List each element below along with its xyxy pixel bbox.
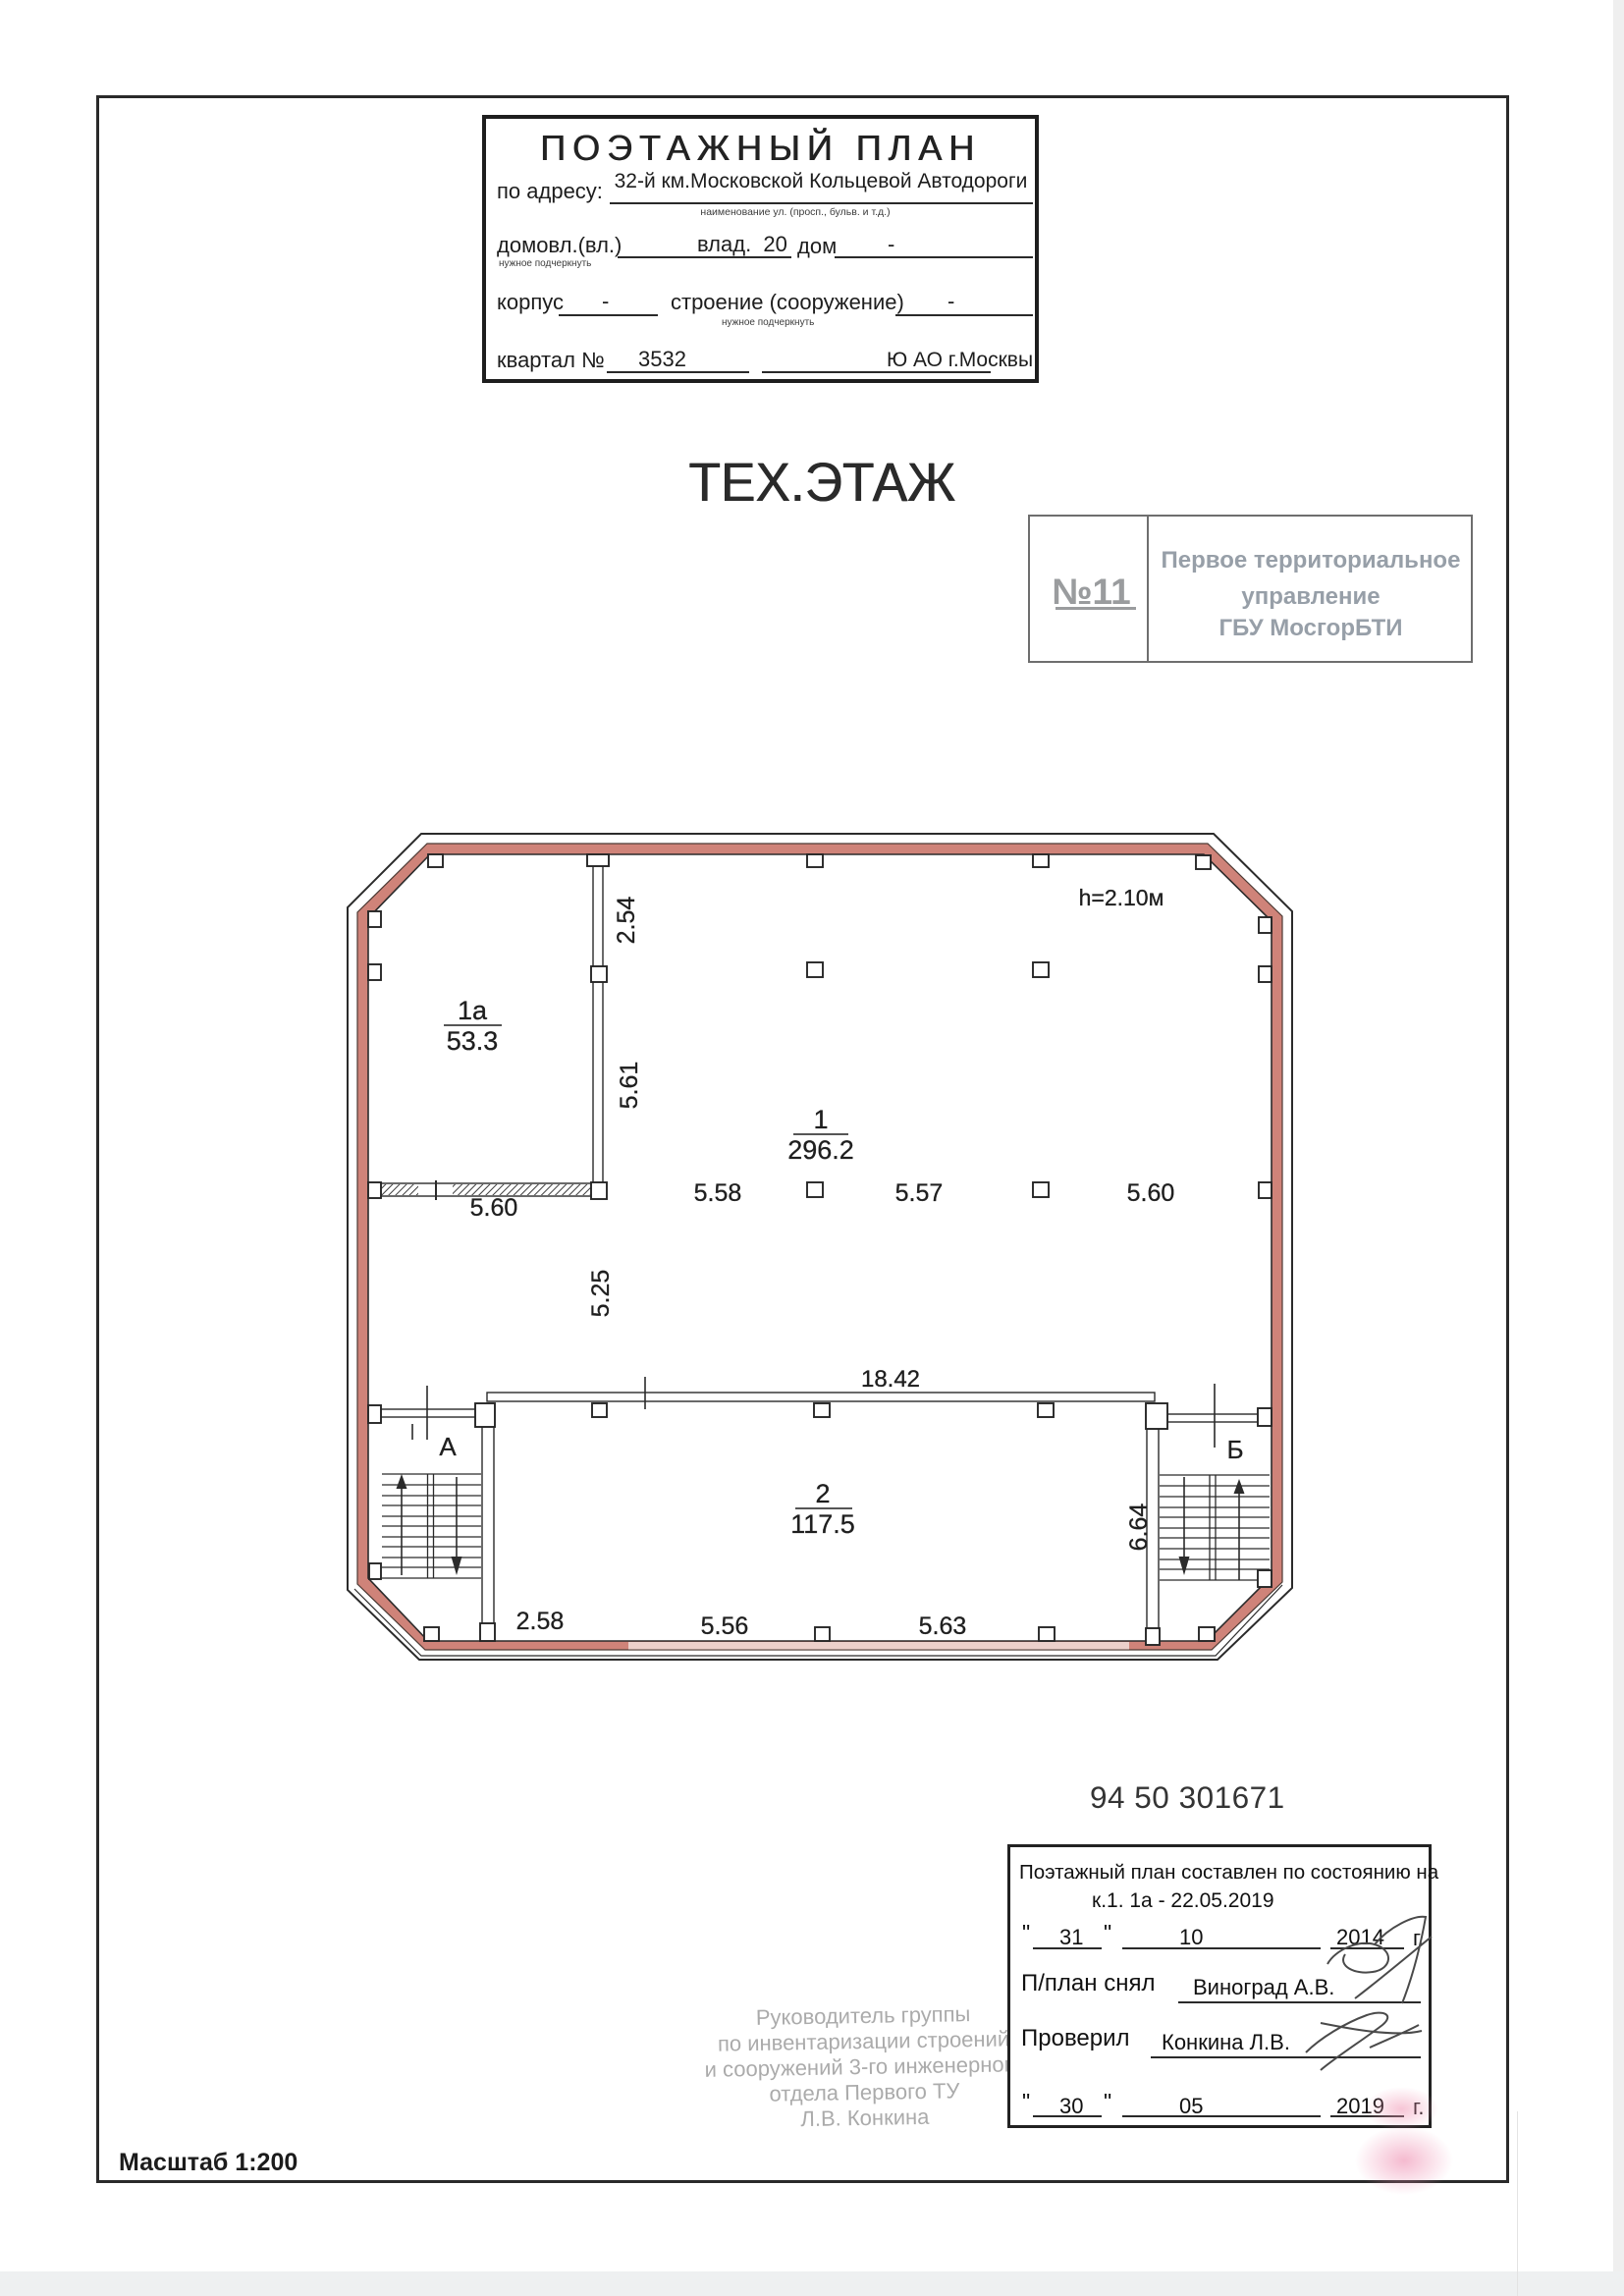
svg-text:2.58: 2.58 [516,1608,565,1635]
svg-text:117.5: 117.5 [790,1509,855,1539]
svg-text:1а: 1а [458,996,488,1025]
svg-text:5.60: 5.60 [1127,1179,1175,1207]
svg-text:5.57: 5.57 [895,1179,944,1207]
svg-text:2: 2 [815,1479,830,1508]
svg-text:5.56: 5.56 [701,1613,749,1640]
svg-text:5.25: 5.25 [587,1270,615,1318]
svg-text:5.63: 5.63 [919,1613,967,1640]
svg-text:Б: Б [1226,1435,1243,1464]
svg-text:6.64: 6.64 [1125,1503,1153,1552]
svg-text:А: А [439,1432,457,1461]
svg-text:5.60: 5.60 [470,1194,518,1222]
svg-text:h=2.10м: h=2.10м [1079,885,1164,910]
svg-text:296.2: 296.2 [787,1135,854,1165]
svg-text:53.3: 53.3 [447,1026,499,1056]
svg-text:5.61: 5.61 [616,1062,643,1110]
svg-text:1: 1 [813,1105,828,1134]
svg-text:5.58: 5.58 [694,1179,742,1207]
svg-text:18.42: 18.42 [861,1366,920,1393]
svg-text:2.54: 2.54 [613,897,640,945]
